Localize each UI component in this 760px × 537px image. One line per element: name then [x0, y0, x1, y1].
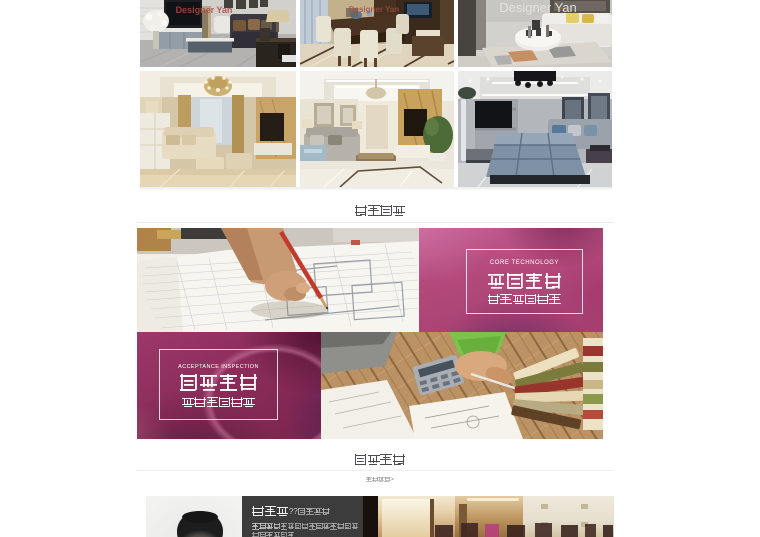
- svg-text:Designer Yan: Designer Yan: [176, 5, 233, 15]
- svg-text:Designer Yan: Designer Yan: [349, 5, 400, 14]
- svg-text:Designer Yan: Designer Yan: [499, 0, 577, 15]
